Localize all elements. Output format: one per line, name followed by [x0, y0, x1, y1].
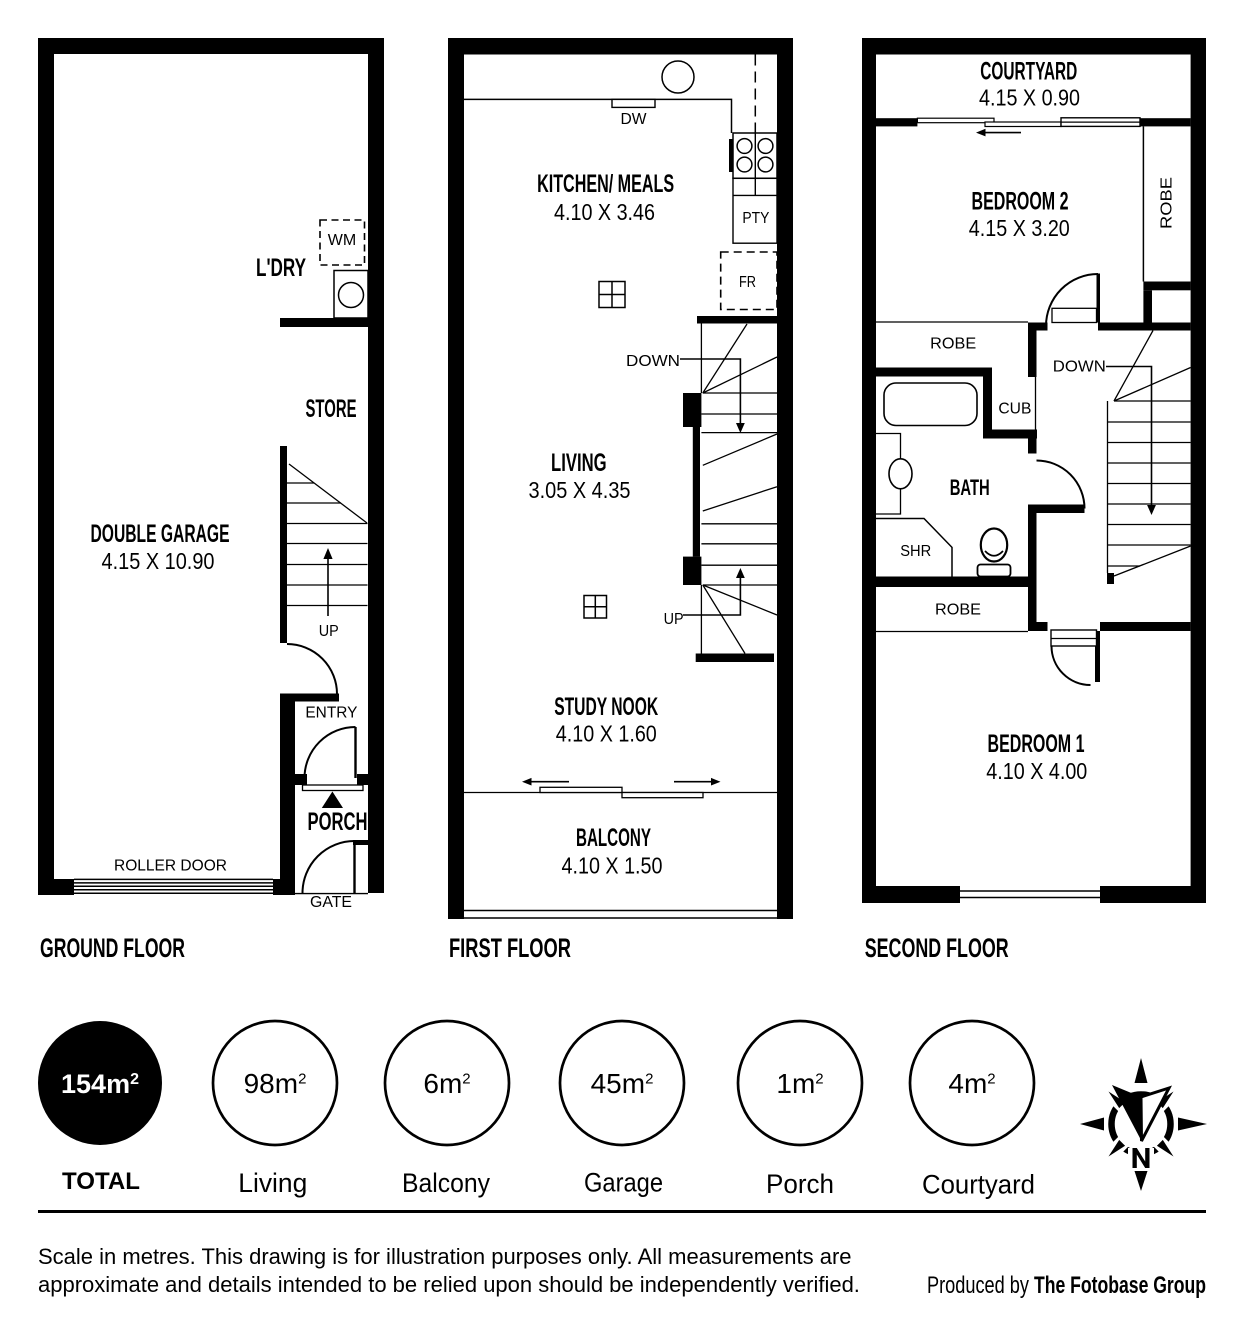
svg-text:UP: UP	[664, 611, 684, 628]
svg-text:Living: Living	[238, 1168, 307, 1198]
svg-text:COURTYARD: COURTYARD	[980, 58, 1077, 86]
svg-text:PTY: PTY	[742, 210, 769, 227]
svg-text:4.15 X 0.90: 4.15 X 0.90	[979, 85, 1080, 111]
svg-text:154m2: 154m2	[61, 1069, 139, 1099]
svg-text:FR: FR	[739, 274, 756, 291]
svg-text:CUB: CUB	[998, 401, 1031, 418]
svg-text:Scale in metres. This drawing: Scale in metres. This drawing is for ill…	[38, 1244, 852, 1269]
svg-text:DOWN: DOWN	[1053, 359, 1106, 376]
svg-text:SHR: SHR	[900, 543, 931, 560]
svg-text:45m2: 45m2	[591, 1068, 654, 1099]
svg-text:TOTAL: TOTAL	[62, 1168, 140, 1195]
svg-text:WM: WM	[328, 232, 356, 249]
svg-text:LIVING: LIVING	[551, 449, 607, 477]
svg-text:4.15 X 10.90: 4.15 X 10.90	[102, 548, 215, 574]
svg-text:Garage: Garage	[584, 1168, 663, 1198]
svg-text:ROLLER DOOR: ROLLER DOOR	[114, 858, 227, 875]
svg-text:BEDROOM 2: BEDROOM 2	[972, 188, 1069, 216]
svg-text:UP: UP	[319, 623, 339, 640]
svg-text:ROBE: ROBE	[935, 602, 981, 619]
svg-text:KITCHEN/ MEALS: KITCHEN/ MEALS	[537, 170, 674, 198]
svg-text:DW: DW	[621, 111, 648, 128]
svg-text:4.10 X 1.60: 4.10 X 1.60	[556, 721, 657, 747]
svg-text:BALCONY: BALCONY	[576, 824, 651, 852]
svg-text:GATE: GATE	[310, 894, 352, 911]
svg-text:SECOND FLOOR: SECOND FLOOR	[865, 933, 1009, 963]
svg-text:4.10 X 3.46: 4.10 X 3.46	[554, 199, 655, 225]
svg-text:98m2: 98m2	[244, 1068, 307, 1099]
svg-text:STUDY NOOK: STUDY NOOK	[554, 693, 658, 721]
svg-text:The Fotobase Group: The Fotobase Group	[1034, 1272, 1206, 1299]
svg-text:BATH: BATH	[950, 475, 990, 500]
svg-text:4.10 X 1.50: 4.10 X 1.50	[562, 853, 663, 879]
svg-text:BEDROOM 1: BEDROOM 1	[988, 730, 1085, 758]
svg-text:Balcony: Balcony	[402, 1168, 490, 1198]
svg-text:STORE: STORE	[306, 395, 357, 423]
svg-text:3.05 X 4.35: 3.05 X 4.35	[529, 477, 631, 503]
svg-text:4.10 X 4.00: 4.10 X 4.00	[986, 758, 1087, 784]
svg-text:Courtyard: Courtyard	[922, 1170, 1035, 1200]
svg-text:ROBE: ROBE	[930, 336, 976, 353]
svg-text:4.15 X 3.20: 4.15 X 3.20	[969, 215, 1070, 241]
svg-text:DOUBLE GARAGE: DOUBLE GARAGE	[91, 520, 230, 548]
svg-text:Produced by: Produced by	[927, 1272, 1029, 1299]
svg-text:L'DRY: L'DRY	[256, 254, 306, 282]
svg-text:FIRST FLOOR: FIRST FLOOR	[449, 933, 571, 963]
svg-text:PORCH: PORCH	[308, 808, 368, 836]
svg-text:DOWN: DOWN	[626, 353, 680, 370]
svg-text:ENTRY: ENTRY	[305, 705, 357, 722]
svg-text:approximate and details intend: approximate and details intended to be r…	[38, 1272, 860, 1297]
svg-text:Porch: Porch	[766, 1169, 834, 1199]
svg-text:ROBE: ROBE	[1158, 177, 1175, 229]
svg-text:GROUND FLOOR: GROUND FLOOR	[40, 933, 185, 963]
